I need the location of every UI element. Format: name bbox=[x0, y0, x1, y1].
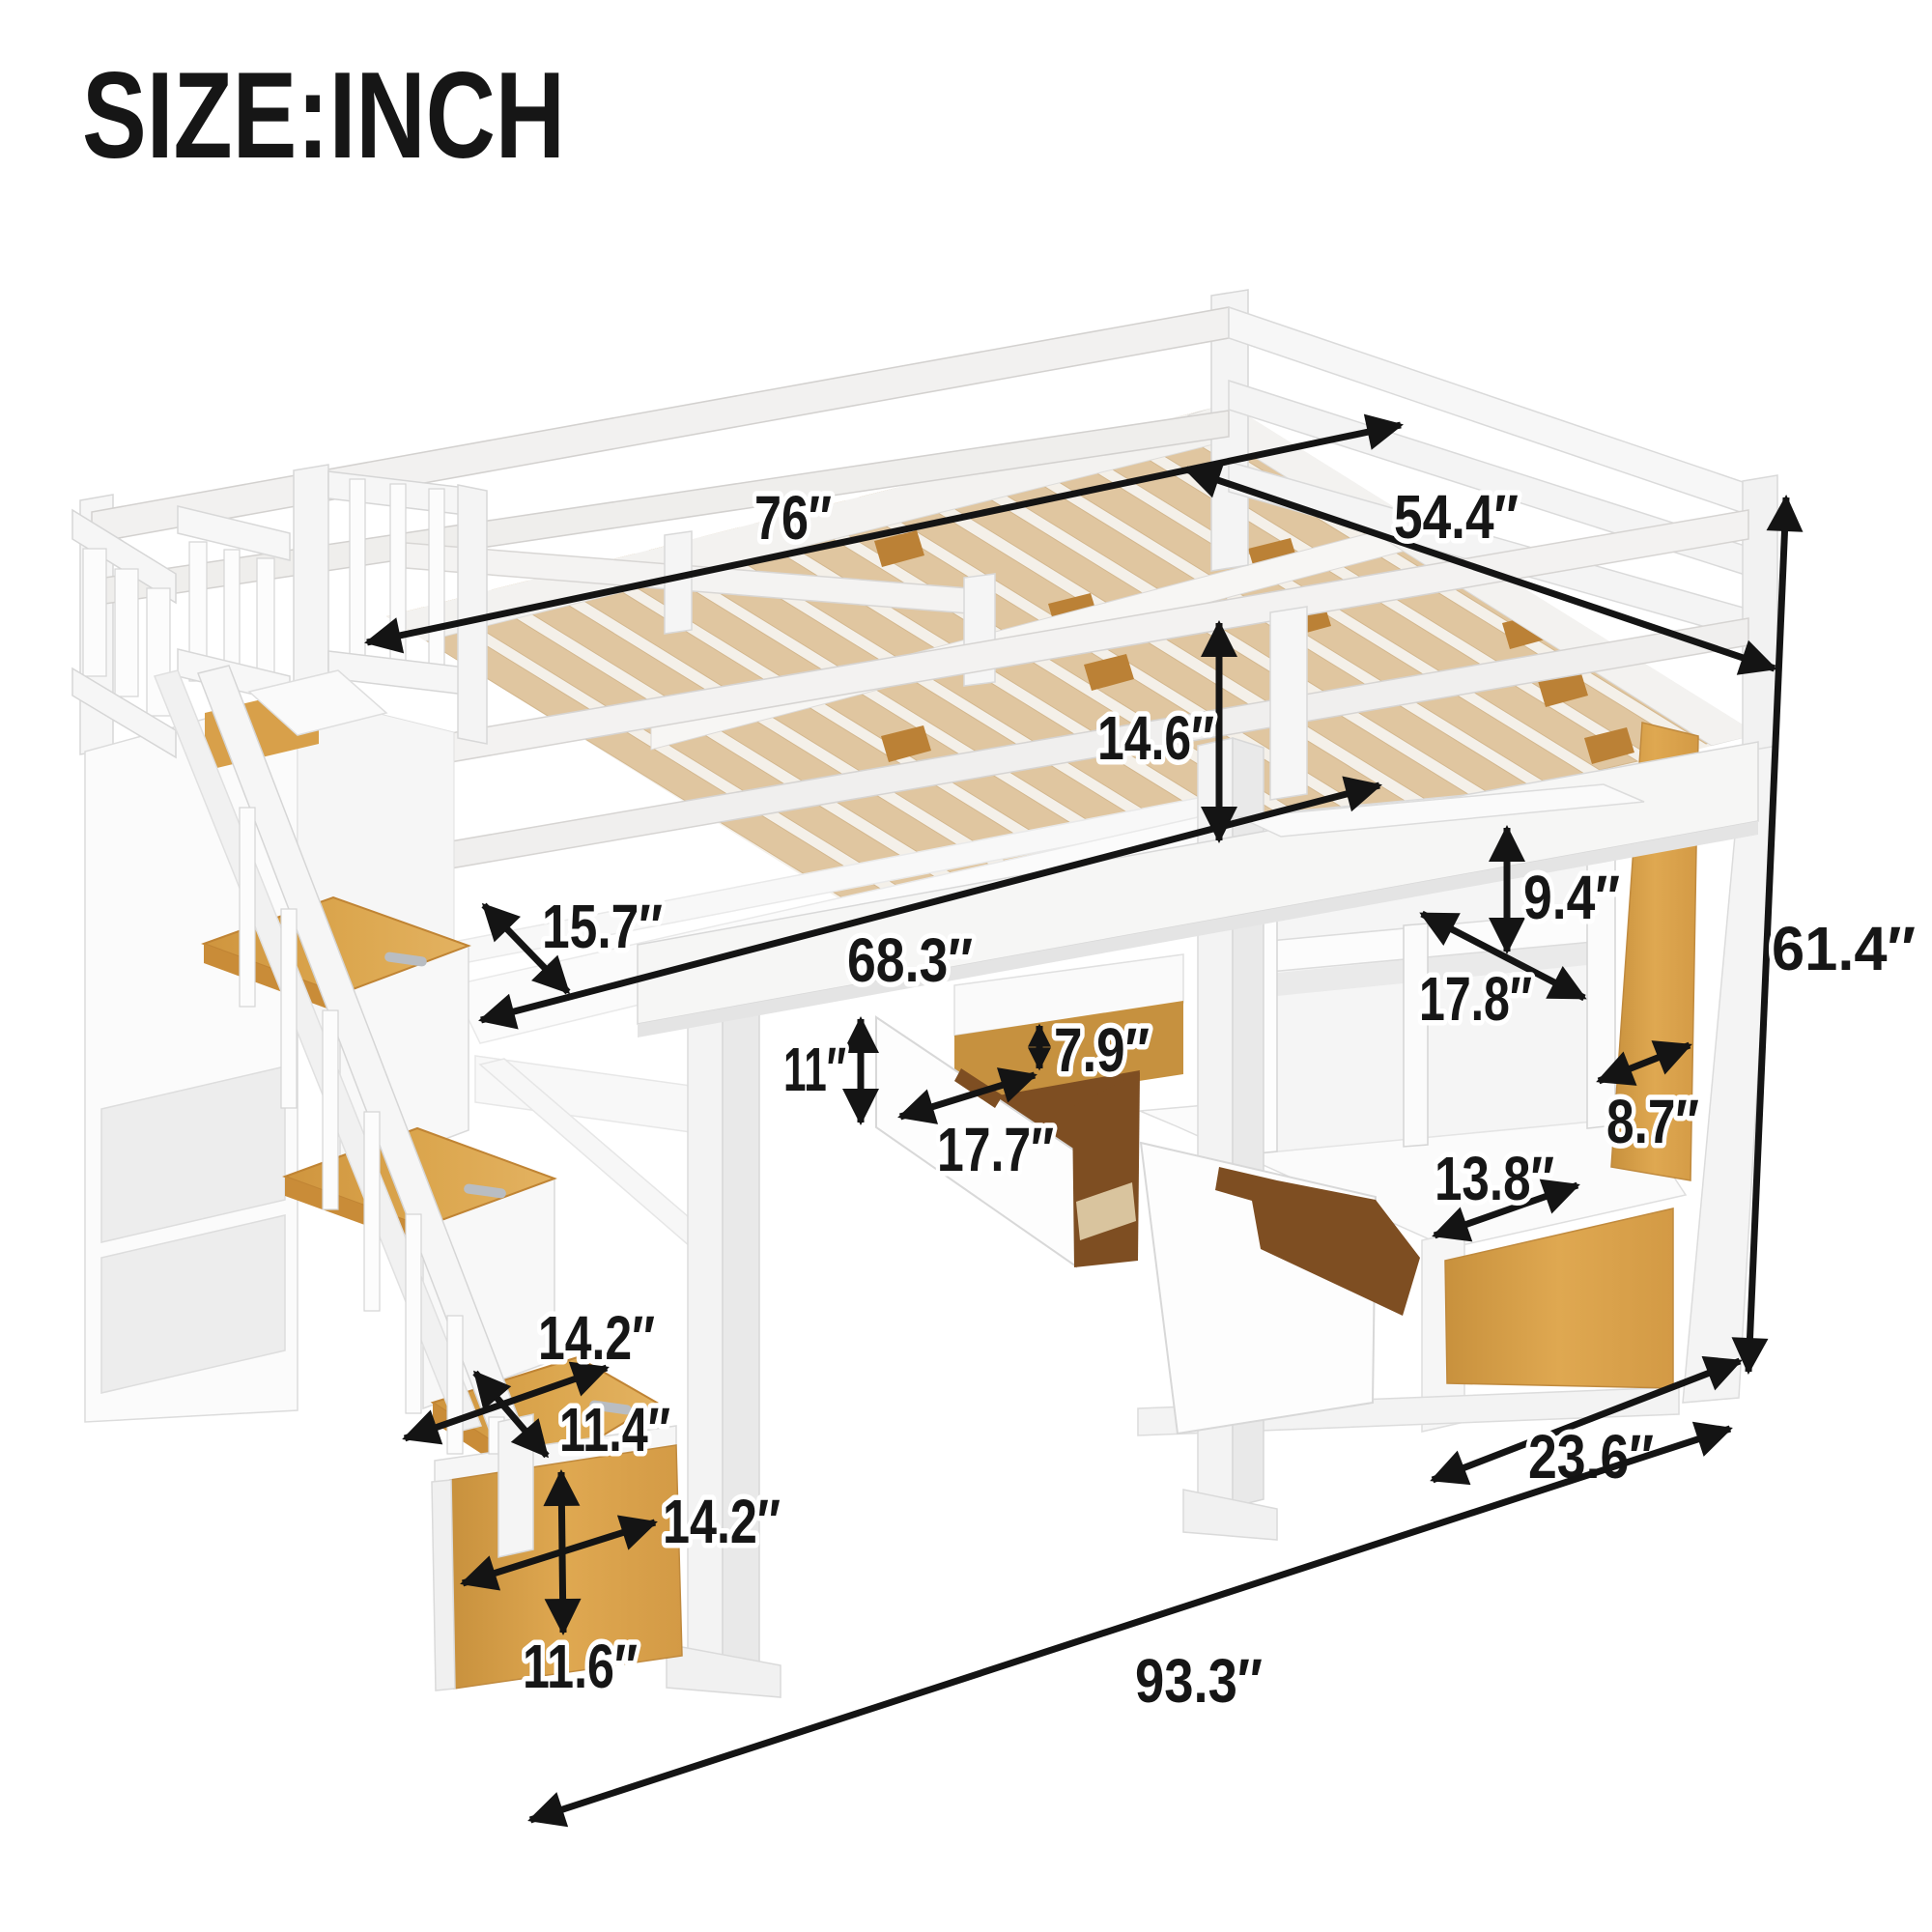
svg-text:93.3″: 93.3″ bbox=[1135, 1646, 1263, 1716]
svg-text:68.3″: 68.3″ bbox=[847, 925, 973, 995]
svg-text:14.2″: 14.2″ bbox=[538, 1303, 655, 1373]
svg-text:13.8″: 13.8″ bbox=[1435, 1144, 1554, 1213]
svg-text:17.8″: 17.8″ bbox=[1419, 964, 1532, 1034]
svg-text:76″: 76″ bbox=[754, 483, 832, 553]
svg-text:9.4″: 9.4″ bbox=[1523, 863, 1620, 932]
svg-text:11.6″: 11.6″ bbox=[523, 1632, 638, 1701]
svg-text:15.7″: 15.7″ bbox=[542, 892, 663, 961]
svg-text:17.7″: 17.7″ bbox=[937, 1115, 1054, 1184]
svg-text:54.4″: 54.4″ bbox=[1394, 482, 1519, 552]
svg-text:SIZE:INCH: SIZE:INCH bbox=[82, 46, 565, 184]
svg-text:61.4″: 61.4″ bbox=[1772, 914, 1916, 983]
svg-text:14.6″: 14.6″ bbox=[1097, 703, 1214, 773]
svg-text:7.9″: 7.9″ bbox=[1054, 1015, 1150, 1085]
svg-text:11.4″: 11.4″ bbox=[559, 1395, 670, 1464]
svg-text:8.7″: 8.7″ bbox=[1606, 1087, 1699, 1156]
svg-text:11″: 11″ bbox=[783, 1035, 846, 1104]
svg-text:14.2″: 14.2″ bbox=[663, 1487, 781, 1556]
